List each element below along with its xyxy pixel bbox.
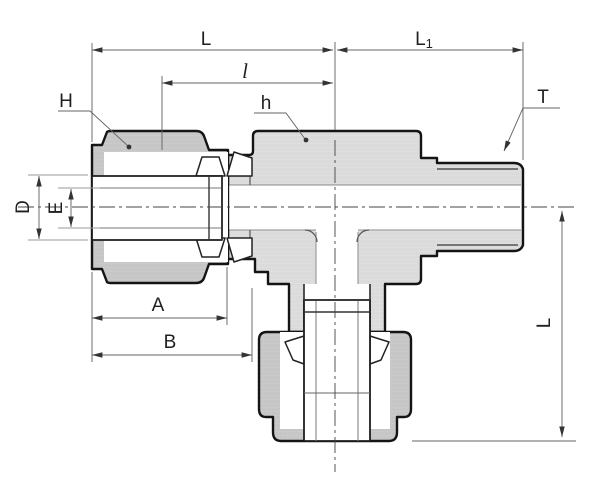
leader-T — [504, 108, 560, 151]
main-bore — [222, 185, 521, 230]
label-h: h — [261, 93, 272, 114]
body-cross-section — [222, 131, 523, 332]
left-tube — [92, 176, 222, 240]
drawing-canvas: L L1 l H h T D E A B L — [0, 0, 603, 485]
label-l: l — [242, 59, 248, 83]
label-L-run: L — [201, 29, 212, 50]
body-outline — [228, 131, 523, 332]
label-L1: L1 — [415, 29, 433, 51]
fitting-drawing: L L1 l H h T D E A B L — [0, 0, 603, 485]
ferrule-back-top — [196, 157, 225, 176]
label-B: B — [164, 332, 177, 353]
label-E: E — [46, 202, 67, 215]
label-A: A — [152, 295, 165, 316]
label-L-drop: L — [534, 318, 555, 329]
label-T: T — [537, 87, 549, 108]
leader-h-dot — [304, 138, 309, 143]
label-H: H — [59, 91, 73, 112]
leader-H-dot — [127, 145, 132, 150]
branch-tube — [304, 300, 370, 441]
label-D: D — [13, 200, 34, 214]
